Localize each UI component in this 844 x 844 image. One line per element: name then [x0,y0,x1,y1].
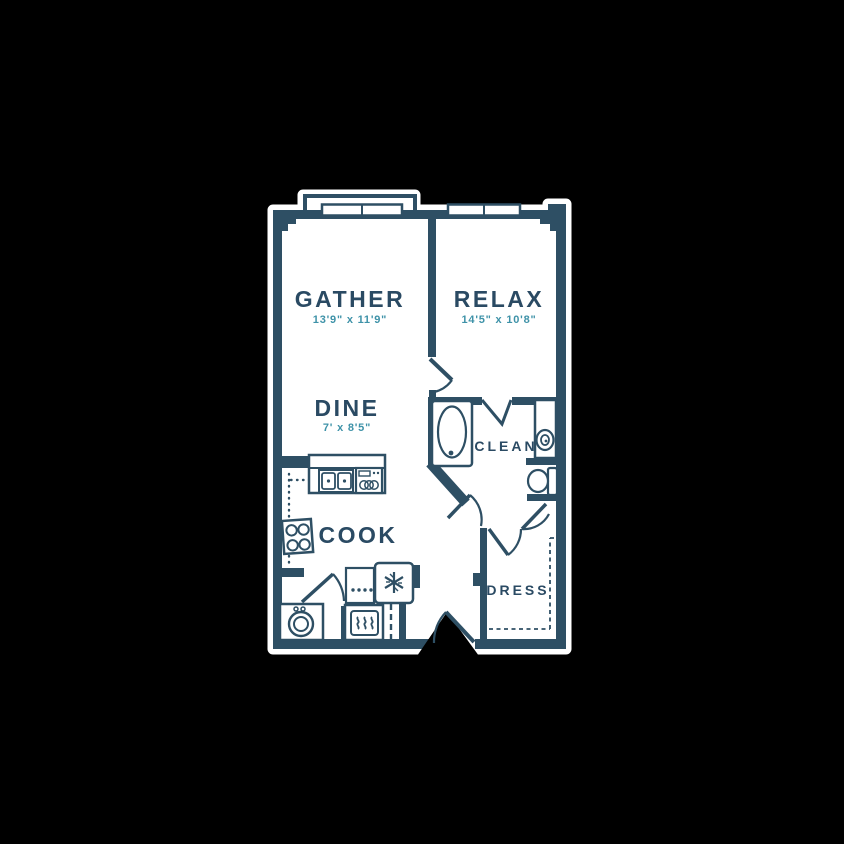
refrigerator-icon [375,563,413,603]
cook-label: COOK [319,522,398,548]
dress-label: DRESS [486,582,549,598]
dine-dimensions: 7' x 8'5" [323,422,371,434]
bathtub-icon [432,401,472,466]
window-gather-icon [322,205,402,216]
gather-dimensions: 13'9" x 11'9" [313,314,387,326]
window-relax-icon [448,205,520,216]
washer-dryer-icon [280,604,323,640]
vanity-sink-icon [535,400,556,458]
cooktop-icon [282,519,313,554]
relax-dimensions: 14'5" x 10'8" [462,314,537,326]
gather-label: GATHER [295,286,405,312]
clean-label: CLEAN [474,438,537,454]
oven-icon [345,605,383,640]
relax-label: RELAX [454,286,544,312]
kitchen-sink-icon [319,470,353,492]
floorplan-svg: GATHER 13'9" x 11'9" RELAX 14'5" x 10'8"… [0,0,844,844]
toilet-icon [528,468,557,495]
dishwasher-icon [356,468,382,493]
floorplan-image: GATHER 13'9" x 11'9" RELAX 14'5" x 10'8"… [0,0,844,844]
pantry-icon [346,568,374,603]
dine-label: DINE [315,395,380,421]
